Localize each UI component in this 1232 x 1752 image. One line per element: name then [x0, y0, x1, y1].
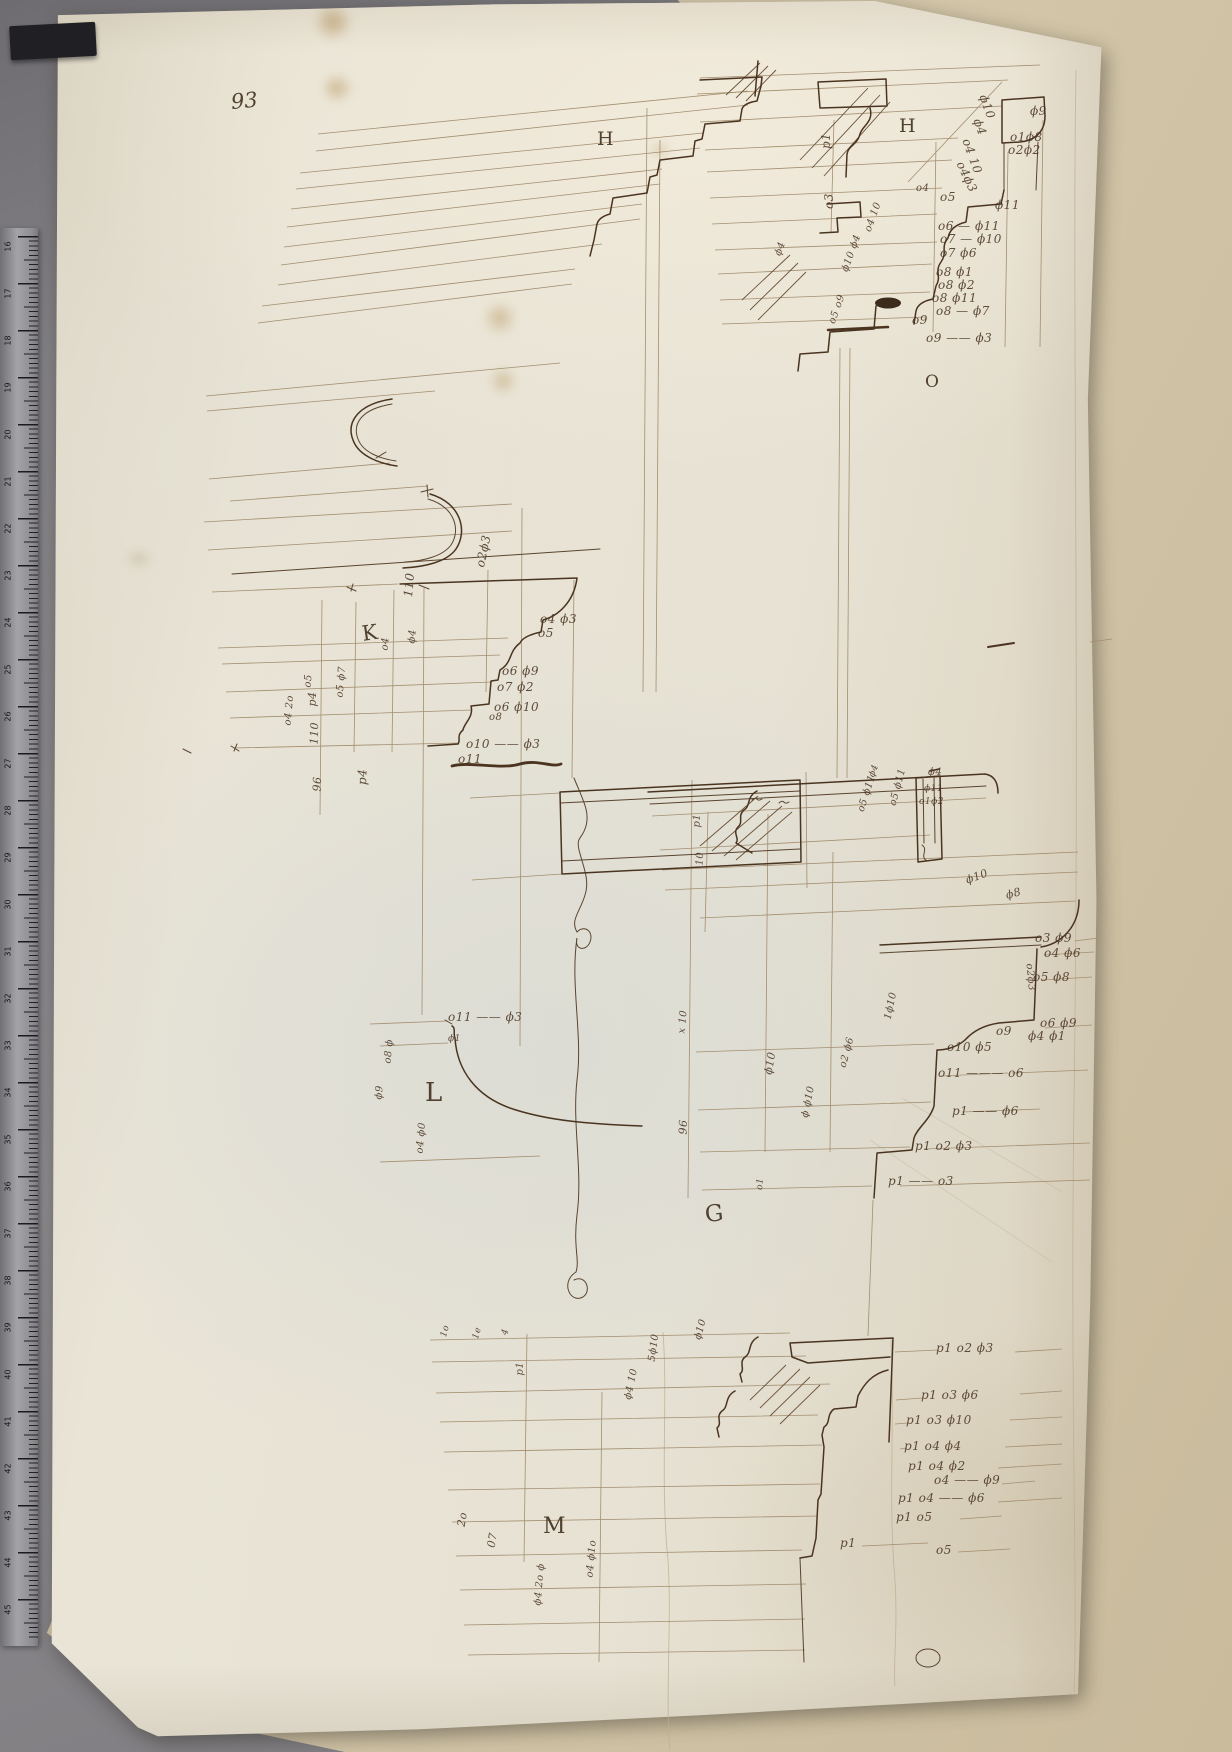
ruler-number: 44	[4, 1557, 13, 1567]
ink-annotation: o10 ϕ5	[947, 1040, 992, 1054]
ink-annotation: ϕ10	[964, 867, 990, 887]
ink-annotation: ϕ4	[773, 240, 788, 257]
ink-annotation: o8 ϕ2	[938, 278, 975, 292]
ink-annotation: ϕ9	[374, 1085, 386, 1100]
ruler-number: 18	[4, 335, 13, 345]
ink-annotation: 110	[401, 572, 417, 598]
ink-annotation: p4	[355, 768, 370, 785]
ink-annotation: ϕ10	[762, 1051, 779, 1076]
ink-annotation: ϕ4	[407, 629, 419, 644]
ruler-number: 28	[4, 805, 13, 815]
ruler-number: 34	[4, 1087, 13, 1097]
ruler-number: 29	[4, 852, 13, 862]
ink-annotation: p1	[819, 133, 833, 149]
ink-annotation: p1 —— ϕ6	[952, 1104, 1019, 1118]
ruler-number: 42	[4, 1463, 13, 1473]
ink-annotation: p1 o2 ϕ3	[915, 1139, 973, 1153]
ink-annotation: o3	[822, 193, 836, 209]
ink-annotation: o8 ϕ11	[932, 291, 977, 305]
ink-annotation: o5 ϕ11	[888, 767, 908, 807]
ink-annotation: p1 o3 ϕ6	[921, 1388, 979, 1402]
ink-annotation: o4 ϕ0	[415, 1122, 429, 1154]
ruler-number: 25	[4, 664, 13, 674]
ruler-number: 21	[4, 476, 13, 486]
ink-annotation: 5ϕ10	[647, 1333, 662, 1362]
ruler-number: 43	[4, 1510, 13, 1520]
ink-annotation: o2ϕ2	[1008, 143, 1041, 157]
ink-annotation: o8 — ϕ7	[936, 304, 990, 318]
ink-annotation: ϕ ϕ10	[800, 1085, 817, 1119]
ink-annotation: o1ϕ2	[919, 797, 944, 807]
ruler-end-clip	[9, 22, 97, 60]
ink-annotation: o5 ϕ7	[335, 666, 349, 698]
ink-annotation: 4	[500, 1328, 511, 1337]
ink-annotations: ϕ9o1ϕ8o2ϕ2ϕ10ϕ4o4 10o4ϕ3o4o5ϕ11o6 — ϕ11o…	[0, 0, 1232, 1752]
ink-annotation: o2ϕ3	[473, 534, 493, 569]
ink-annotation: p1 o2 ϕ3	[936, 1341, 994, 1355]
ink-annotation: o6 ϕ9	[502, 664, 539, 678]
ink-annotation: o4	[916, 183, 929, 194]
ink-annotation: o11	[458, 752, 482, 766]
ink-annotation: o8 ϕ	[383, 1039, 396, 1064]
ink-annotation: o10 —— ϕ3	[466, 737, 540, 751]
ruler-number: 38	[4, 1275, 13, 1285]
ink-annotation: 96	[311, 776, 325, 791]
ruler-number: 24	[4, 617, 13, 627]
ink-annotation: o5	[538, 626, 554, 640]
ruler-number: 30	[4, 899, 13, 909]
ink-annotation: o1	[755, 1177, 766, 1190]
ink-annotation: o2ϕ3	[1024, 963, 1037, 991]
ink-annotation: o4 —— ϕ9	[934, 1473, 1000, 1487]
ink-annotation: o9	[996, 1024, 1012, 1038]
ink-annotation: o5	[936, 1543, 952, 1557]
ink-annotation: 1ϕ10	[883, 991, 900, 1021]
ruler-number: 41	[4, 1416, 13, 1426]
ink-annotation: ϕ4 ϕ1	[1028, 1029, 1066, 1043]
ink-annotation: o8	[489, 712, 502, 723]
ink-annotation: o4 ϕ3	[540, 612, 577, 626]
ink-annotation: p1	[515, 1362, 526, 1376]
ink-annotation: o4 2o	[283, 695, 297, 726]
ink-annotation: 10	[695, 852, 706, 866]
ink-annotation: o7 ϕ6	[940, 246, 977, 260]
ink-annotation: ϕ1	[448, 1034, 461, 1044]
ruler-number: 27	[4, 758, 13, 768]
ruler-number: 19	[4, 382, 13, 392]
ink-annotation: o7 — ϕ10	[940, 232, 1002, 246]
ink-annotation: o9 —— ϕ3	[926, 331, 992, 345]
ink-annotation: o11 ——— o6	[938, 1066, 1024, 1080]
ink-annotation: o4 ϕ6	[1044, 946, 1081, 960]
ink-annotation: o5 ϕ8	[1033, 970, 1070, 984]
ruler-number: 37	[4, 1228, 13, 1238]
ink-annotation: ϕ8	[1004, 885, 1022, 902]
ruler-number: 22	[4, 523, 13, 533]
ink-annotation: o8 ϕ1	[936, 265, 973, 279]
ink-annotation: ϕ4	[928, 767, 942, 778]
ruler: 1617181920212223242526272829303132333435…	[0, 228, 38, 1646]
ruler-number: 23	[4, 570, 13, 580]
ink-annotation: 96	[677, 1119, 691, 1134]
ink-annotation: x 10	[677, 1010, 690, 1034]
ruler-number: 20	[4, 429, 13, 439]
ruler-number: 16	[4, 241, 13, 251]
ruler-number: 39	[4, 1322, 13, 1332]
ink-annotation: 110	[308, 722, 322, 745]
ruler-number: 17	[4, 288, 13, 298]
ink-annotation: p1 o5	[896, 1510, 933, 1524]
ink-annotation: 1e	[471, 1326, 484, 1340]
ink-annotation: ϕ4 2o ϕ	[533, 1563, 548, 1606]
ink-annotation: ϕ4 10	[623, 1367, 640, 1400]
ink-annotation: o5	[303, 674, 315, 688]
ink-annotation: ϕ10	[976, 93, 998, 121]
ink-annotation: o4	[380, 637, 392, 651]
ink-annotation: p1 o3 ϕ10	[906, 1413, 972, 1427]
ruler-cm-ticks	[18, 236, 38, 1638]
ruler-number: 36	[4, 1181, 13, 1191]
ink-annotation: 07	[485, 1532, 500, 1549]
photo-of-manuscript: { "page": { "number": "93" }, "colors": …	[0, 0, 1232, 1752]
ink-annotation: o4 10	[863, 201, 884, 234]
ink-annotation: ϕ10	[693, 1318, 709, 1341]
ink-annotation: o4 ϕ1o	[585, 1539, 599, 1578]
ink-annotation: ϕ11	[924, 784, 943, 794]
ink-annotation: o2 ϕ6	[838, 1036, 857, 1069]
ink-annotation: ϕ9	[1030, 104, 1047, 118]
ink-annotation: p1 o4 ϕ4	[904, 1439, 962, 1453]
ink-annotation: o11 —— ϕ3	[448, 1010, 522, 1024]
ruler-number: 45	[4, 1604, 13, 1614]
ruler-number: 26	[4, 711, 13, 721]
ink-annotation: p1 o4 —— ϕ6	[898, 1491, 985, 1505]
ruler-number: 33	[4, 1040, 13, 1050]
ink-annotation: ϕ4	[867, 763, 881, 779]
ruler-number: 31	[4, 946, 13, 956]
ink-annotation: p4	[306, 691, 320, 706]
ink-annotation: o7 ϕ2	[497, 680, 534, 694]
ink-annotation: o1ϕ8	[1010, 130, 1043, 144]
ink-annotation: o5	[940, 190, 956, 204]
ink-annotation: ϕ10 ϕ4	[840, 233, 864, 273]
ruler-number: 40	[4, 1369, 13, 1379]
ink-annotation: o5 o9	[827, 293, 848, 325]
ruler-number: 32	[4, 993, 13, 1003]
ink-annotation: p1	[692, 814, 703, 828]
ink-annotation: p1 o4 ϕ2	[908, 1459, 966, 1473]
ink-annotation: o6 ϕ9	[1040, 1016, 1077, 1030]
ink-annotation: o6 — ϕ11	[938, 219, 1000, 233]
ink-annotation: 1o	[439, 1324, 452, 1338]
ink-annotation: o5 ϕ11	[856, 774, 878, 814]
ink-annotation: p1	[840, 1536, 856, 1550]
ink-annotation: o3 ϕ9	[1035, 931, 1072, 945]
ink-annotation: o9	[912, 313, 928, 327]
ruler-number: 35	[4, 1134, 13, 1144]
ink-annotation: p1 —— o3	[888, 1174, 954, 1188]
ink-annotation: 2o	[455, 1511, 470, 1528]
ink-annotation: ϕ11	[995, 198, 1020, 212]
